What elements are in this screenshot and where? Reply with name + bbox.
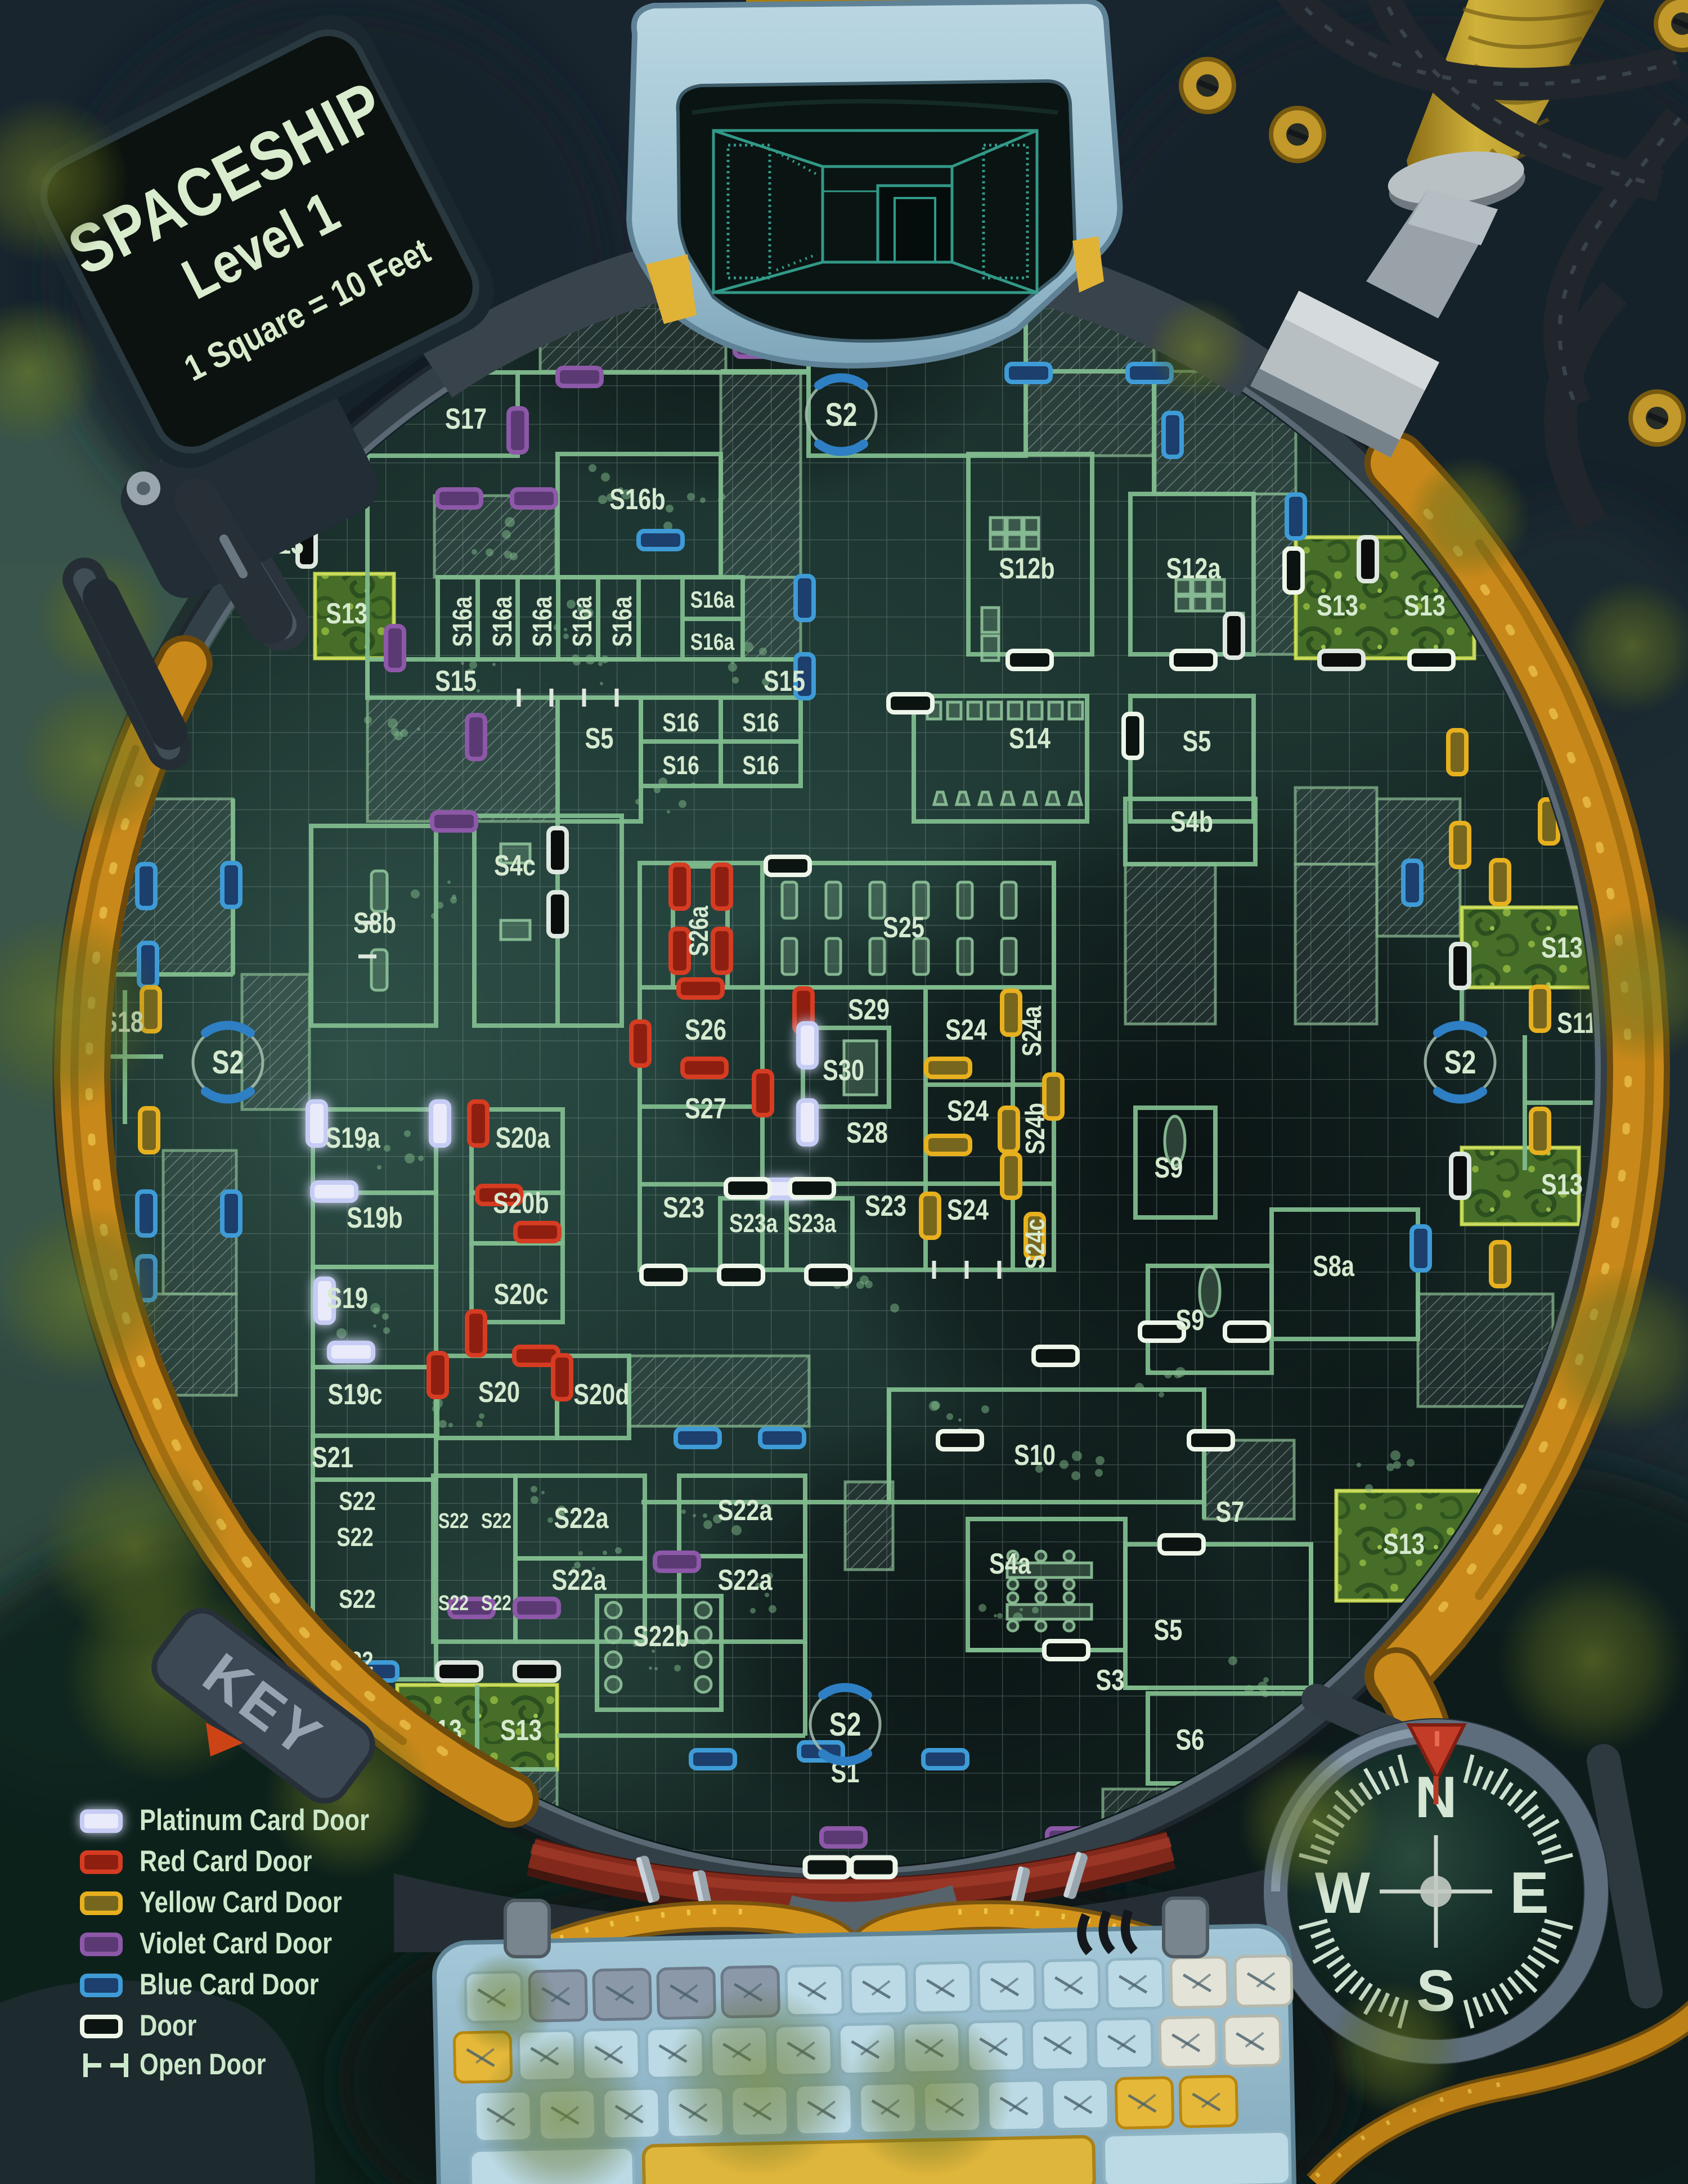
svg-text:S16a: S16a — [528, 596, 558, 646]
svg-text:S29: S29 — [848, 993, 890, 1026]
svg-text:E: E — [1510, 1861, 1548, 1926]
svg-text:S28: S28 — [846, 1116, 888, 1149]
svg-text:S16: S16 — [742, 751, 779, 780]
svg-text:S4b: S4b — [1170, 805, 1213, 838]
svg-text:S23a: S23a — [729, 1208, 778, 1238]
svg-text:S2: S2 — [825, 397, 858, 433]
svg-text:S16a: S16a — [448, 596, 478, 646]
svg-text:S19b: S19b — [347, 1201, 402, 1234]
svg-text:S27: S27 — [685, 1092, 726, 1125]
svg-text:S22a: S22a — [717, 1563, 773, 1597]
svg-text:S5: S5 — [1154, 1614, 1183, 1647]
svg-text:S13: S13 — [1404, 589, 1445, 622]
svg-text:S4c: S4c — [494, 849, 536, 882]
svg-text:S22a: S22a — [717, 1494, 773, 1527]
svg-text:S24c: S24c — [1021, 1219, 1050, 1269]
svg-text:S22b: S22b — [633, 1620, 689, 1653]
svg-text:S20: S20 — [478, 1376, 520, 1409]
svg-text:S13: S13 — [326, 597, 367, 630]
svg-text:S24: S24 — [947, 1193, 989, 1226]
svg-text:S24a: S24a — [1017, 1005, 1047, 1056]
svg-text:S5: S5 — [585, 722, 614, 755]
svg-text:S22: S22 — [339, 1584, 375, 1614]
svg-text:S13: S13 — [1317, 589, 1358, 622]
svg-text:S30: S30 — [823, 1054, 864, 1087]
svg-text:S24: S24 — [945, 1013, 987, 1046]
svg-text:S16b: S16b — [609, 483, 665, 516]
svg-text:Platinum Card Door: Platinum Card Door — [140, 1804, 369, 1837]
svg-text:S16a: S16a — [568, 596, 598, 646]
svg-text:S9: S9 — [1155, 1151, 1183, 1184]
svg-text:S19: S19 — [326, 1282, 368, 1315]
svg-text:S6: S6 — [1176, 1723, 1205, 1756]
svg-text:Blue Card Door: Blue Card Door — [140, 1968, 319, 2001]
svg-text:S13: S13 — [500, 1714, 542, 1747]
svg-text:S26a: S26a — [684, 905, 714, 956]
svg-text:S16a: S16a — [488, 596, 518, 646]
svg-text:S19c: S19c — [327, 1378, 382, 1411]
svg-text:S15: S15 — [435, 664, 477, 698]
svg-text:S5: S5 — [1183, 725, 1211, 758]
svg-text:S16: S16 — [742, 708, 779, 737]
svg-text:Open Door: Open Door — [140, 2048, 266, 2081]
svg-text:S22: S22 — [438, 1592, 469, 1615]
svg-text:S16: S16 — [662, 708, 699, 737]
svg-text:S22a: S22a — [551, 1563, 607, 1597]
svg-text:S16a: S16a — [690, 587, 735, 613]
svg-text:Red Card Door: Red Card Door — [140, 1845, 312, 1878]
svg-text:S3: S3 — [1096, 1664, 1125, 1697]
svg-text:S23: S23 — [865, 1189, 906, 1223]
svg-text:S4a: S4a — [989, 1547, 1031, 1580]
svg-text:S20a: S20a — [495, 1121, 550, 1154]
svg-text:S2: S2 — [1444, 1044, 1476, 1081]
svg-text:S2: S2 — [212, 1044, 244, 1081]
svg-text:Violet Card Door: Violet Card Door — [140, 1927, 332, 1960]
svg-text:S22: S22 — [481, 1509, 511, 1533]
svg-text:S24b: S24b — [1021, 1103, 1050, 1154]
svg-text:S13: S13 — [1383, 1527, 1425, 1561]
svg-text:S8b: S8b — [353, 906, 396, 940]
svg-text:S2: S2 — [829, 1706, 861, 1743]
svg-text:S22a: S22a — [554, 1502, 609, 1535]
svg-text:S20b: S20b — [493, 1187, 549, 1220]
svg-text:S24: S24 — [947, 1094, 989, 1127]
svg-text:S22: S22 — [339, 1486, 375, 1516]
svg-text:S20c: S20c — [493, 1278, 548, 1311]
svg-text:S19a: S19a — [325, 1121, 380, 1154]
svg-text:Door: Door — [140, 2009, 196, 2042]
svg-text:S14: S14 — [1009, 722, 1050, 755]
svg-text:S12a: S12a — [1166, 552, 1221, 585]
svg-text:S10: S10 — [1014, 1439, 1056, 1472]
svg-text:S17: S17 — [445, 402, 487, 435]
svg-text:S22: S22 — [481, 1592, 511, 1615]
svg-text:S13: S13 — [1541, 1168, 1583, 1201]
svg-text:S25: S25 — [883, 911, 924, 944]
svg-text:Yellow Card Door: Yellow Card Door — [140, 1886, 342, 1919]
svg-text:S16a: S16a — [690, 630, 735, 655]
svg-text:S23a: S23a — [788, 1208, 837, 1238]
svg-text:S20d: S20d — [573, 1378, 629, 1411]
svg-text:S26: S26 — [685, 1013, 726, 1046]
svg-text:S8a: S8a — [1313, 1250, 1355, 1283]
svg-text:S12b: S12b — [999, 552, 1054, 585]
svg-text:S16: S16 — [662, 751, 699, 780]
svg-text:S9: S9 — [1176, 1304, 1205, 1337]
svg-text:S15: S15 — [764, 664, 805, 698]
svg-text:S7: S7 — [1216, 1495, 1245, 1529]
svg-text:S22: S22 — [336, 1522, 373, 1552]
svg-text:S22: S22 — [438, 1509, 469, 1533]
svg-text:S23: S23 — [663, 1191, 704, 1224]
svg-text:S16a: S16a — [608, 596, 638, 646]
svg-text:S21: S21 — [312, 1441, 353, 1474]
